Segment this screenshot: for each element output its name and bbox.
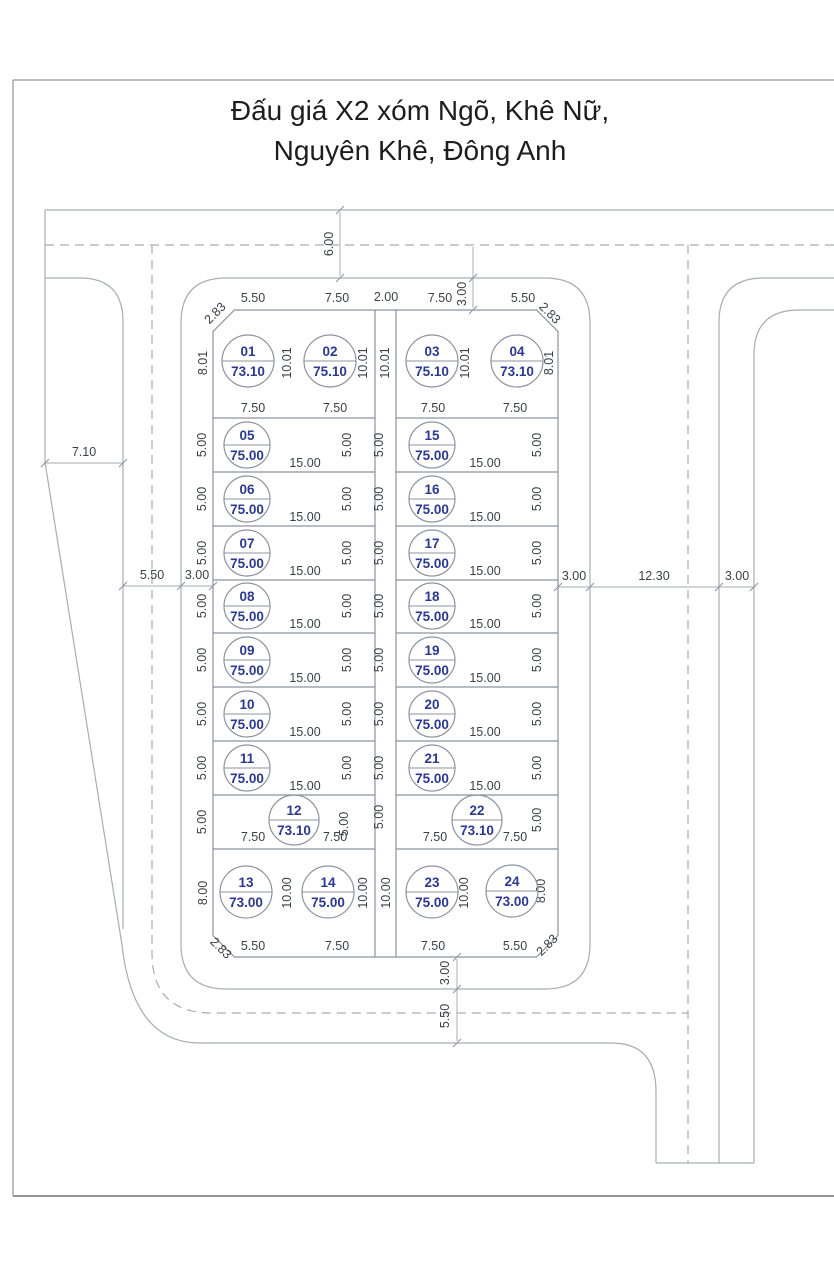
svg-text:14: 14 [320,875,336,890]
svg-text:5.00: 5.00 [530,541,544,565]
svg-text:15.00: 15.00 [469,779,500,793]
plot-17-marker: 1775.00 [409,530,455,576]
svg-text:04: 04 [509,344,525,359]
svg-text:5.00: 5.00 [340,433,354,457]
svg-text:15.00: 15.00 [289,564,320,578]
dim-label: 10.00 [457,877,471,908]
drawing-title-line1: Đấu giá X2 xóm Ngõ, Khê Nữ, [231,95,609,126]
svg-text:06: 06 [239,482,255,497]
dim-right-offset-east: 3.00 [725,569,749,583]
svg-text:5.00: 5.00 [372,433,386,457]
dim-label: 7.50 [428,291,452,305]
svg-text:73.00: 73.00 [495,894,529,909]
dim-label: 7.50 [421,939,445,953]
svg-text:5.00: 5.00 [195,433,209,457]
svg-text:5.00: 5.00 [195,487,209,511]
dimension-lines [45,212,754,1041]
svg-text:5.00: 5.00 [340,648,354,672]
svg-text:5.00: 5.00 [372,487,386,511]
plot-01-marker: 0173.10 [222,335,274,387]
dim-label: 10.01 [378,347,392,378]
dim-top-road-width: 6.00 [322,232,336,256]
dim-label: 10.01 [356,347,370,378]
svg-text:73.10: 73.10 [460,823,494,838]
svg-text:5.00: 5.00 [372,594,386,618]
svg-text:11: 11 [240,751,255,766]
svg-text:5.00: 5.00 [530,648,544,672]
left-road-west-edge [45,278,123,929]
svg-text:7.50: 7.50 [323,830,347,844]
svg-text:75.00: 75.00 [311,895,345,910]
svg-text:73.10: 73.10 [500,364,534,379]
svg-text:10: 10 [239,697,254,712]
svg-text:7.50: 7.50 [503,830,527,844]
dim-label: 7.50 [325,939,349,953]
svg-text:15.00: 15.00 [289,725,320,739]
svg-text:7.50: 7.50 [423,830,447,844]
svg-text:15.00: 15.00 [289,456,320,470]
svg-text:5.00: 5.00 [530,808,544,832]
svg-text:03: 03 [424,344,440,359]
svg-text:5.00: 5.00 [195,594,209,618]
dim-left-road-width: 5.50 [140,568,164,582]
plot-05-marker: 0575.00 [224,422,270,468]
svg-text:15.00: 15.00 [289,671,320,685]
svg-text:75.00: 75.00 [415,663,449,678]
dim-label: 7.50 [421,401,445,415]
dim-label: 5.50 [511,291,535,305]
dim-left-parcel: 7.10 [72,445,96,459]
plot-14-marker: 1475.00 [302,866,354,918]
dim-label: 5.50 [241,939,265,953]
svg-text:5.00: 5.00 [340,541,354,565]
svg-text:5.00: 5.00 [195,756,209,780]
svg-text:05: 05 [239,428,255,443]
svg-text:5.00: 5.00 [372,541,386,565]
plot-07-marker: 0775.00 [224,530,270,576]
svg-text:75.00: 75.00 [230,771,264,786]
dim-chamfer-bl: 2.83 [207,935,234,962]
drawing-title-line2: Nguyên Khê, Đông Anh [274,135,567,166]
svg-text:73.00: 73.00 [229,895,263,910]
svg-text:75.00: 75.00 [415,448,449,463]
dim-label: 8.01 [542,351,556,375]
svg-text:5.00: 5.00 [340,487,354,511]
svg-text:5.00: 5.00 [530,594,544,618]
plot-16-marker: 1675.00 [409,476,455,522]
svg-text:17: 17 [424,536,439,551]
svg-text:5.00: 5.00 [195,702,209,726]
svg-text:5.00: 5.00 [372,702,386,726]
dim-top-offset: 3.00 [455,282,469,306]
plot-06-marker: 0675.00 [224,476,270,522]
right-offset-line [754,310,834,1163]
svg-text:15: 15 [424,428,440,443]
dimension-ticks [41,206,758,1047]
svg-text:15.00: 15.00 [289,617,320,631]
svg-text:75.00: 75.00 [415,771,449,786]
svg-text:15.00: 15.00 [469,456,500,470]
svg-text:5.00: 5.00 [372,805,386,829]
svg-text:75.00: 75.00 [230,448,264,463]
svg-text:5.00: 5.00 [530,756,544,780]
svg-text:15.00: 15.00 [469,564,500,578]
dim-chamfer-br: 2.83 [534,932,561,959]
dim-label: 8.01 [196,351,210,375]
svg-text:13: 13 [238,875,254,890]
svg-text:22: 22 [469,803,484,818]
dim-label: 10.00 [280,877,294,908]
dim-label: 7.50 [241,401,265,415]
dim-bottom-road-width: 5.50 [438,1004,452,1028]
dim-label: 5.50 [241,291,265,305]
block-center-strip [375,310,396,957]
dim-label: 7.50 [325,291,349,305]
svg-text:08: 08 [239,589,255,604]
dim-label: 10.00 [379,877,393,908]
svg-text:5.00: 5.00 [530,433,544,457]
svg-text:5.00: 5.00 [340,756,354,780]
svg-text:75.10: 75.10 [313,364,347,379]
plot-12-marker: 1273.10 [269,795,319,845]
site-plan-drawing: Đấu giá X2 xóm Ngõ, Khê Nữ, Nguyên Khê, … [0,0,834,1280]
svg-text:12: 12 [286,803,301,818]
dim-label: 8.00 [196,881,210,905]
dim-chamfer-tr: 2.83 [536,300,563,327]
svg-text:18: 18 [424,589,440,604]
svg-text:5.00: 5.00 [530,487,544,511]
dim-right-offset-west: 3.00 [562,569,586,583]
svg-text:01: 01 [240,344,256,359]
svg-text:75.00: 75.00 [415,556,449,571]
dim-label: 7.50 [323,401,347,415]
dim-left-offset: 3.00 [185,568,209,582]
svg-text:75.00: 75.00 [415,717,449,732]
svg-text:5.00: 5.00 [195,810,209,834]
scanned-site-plan-sheet: Đấu giá X2 xóm Ngõ, Khê Nữ, Nguyên Khê, … [0,0,834,1280]
plot-13-marker: 1373.00 [220,866,272,918]
dim-bottom-offset: 3.00 [438,961,452,985]
plot-03-marker: 0375.10 [406,335,458,387]
svg-text:23: 23 [424,875,440,890]
svg-text:5.00: 5.00 [530,702,544,726]
svg-text:15.00: 15.00 [289,510,320,524]
plot-08-marker: 0875.00 [224,583,270,629]
svg-text:73.10: 73.10 [277,823,311,838]
plot-04-marker: 0473.10 [491,335,543,387]
svg-text:5.00: 5.00 [340,594,354,618]
svg-text:19: 19 [424,643,439,658]
svg-text:16: 16 [424,482,440,497]
svg-text:5.00: 5.00 [372,756,386,780]
svg-text:02: 02 [322,344,337,359]
plot-19-marker: 1975.00 [409,637,455,683]
plot-11-marker: 1175.00 [224,745,270,791]
dim-label: 2.00 [374,290,398,304]
plot-18-marker: 1875.00 [409,583,455,629]
svg-text:75.00: 75.00 [230,556,264,571]
svg-text:15.00: 15.00 [469,671,500,685]
svg-text:5.00: 5.00 [340,702,354,726]
svg-text:75.00: 75.00 [230,717,264,732]
svg-text:07: 07 [239,536,254,551]
svg-text:21: 21 [424,751,440,766]
dim-label: 10.01 [280,347,294,378]
svg-text:15.00: 15.00 [469,617,500,631]
plot-21-marker: 2175.00 [409,745,455,791]
svg-text:15.00: 15.00 [469,510,500,524]
svg-text:75.00: 75.00 [415,609,449,624]
right-road-east-edge [719,278,834,1163]
svg-text:5.00: 5.00 [372,648,386,672]
svg-text:15.00: 15.00 [469,725,500,739]
plot-22-marker: 2273.10 [452,795,502,845]
dim-label: 10.00 [356,877,370,908]
plot-02-marker: 0275.10 [304,335,356,387]
dim-label: 5.50 [503,939,527,953]
svg-text:5.00: 5.00 [195,648,209,672]
svg-text:15.00: 15.00 [289,779,320,793]
dim-chamfer-tl: 2.83 [202,300,229,327]
svg-text:75.00: 75.00 [230,502,264,517]
plot-15-marker: 1575.00 [409,422,455,468]
svg-text:75.00: 75.00 [415,502,449,517]
dim-label: 7.50 [503,401,527,415]
svg-text:09: 09 [239,643,254,658]
svg-text:75.00: 75.00 [230,609,264,624]
dim-label: 10.01 [458,347,472,378]
plot-23-marker: 2375.00 [406,866,458,918]
plot-09-marker: 0975.00 [224,637,270,683]
svg-text:5.00: 5.00 [195,541,209,565]
plot-divider-lines [213,418,558,849]
dim-right-road-width: 12.30 [638,569,669,583]
svg-text:24: 24 [504,874,520,889]
plot-24-marker: 2473.00 [486,865,538,917]
svg-text:20: 20 [424,697,439,712]
plot-20-marker: 2075.00 [409,691,455,737]
svg-text:75.00: 75.00 [415,895,449,910]
svg-text:73.10: 73.10 [231,364,265,379]
svg-text:75.00: 75.00 [230,663,264,678]
svg-text:75.10: 75.10 [415,364,449,379]
svg-text:7.50: 7.50 [241,830,265,844]
plot-10-marker: 1075.00 [224,691,270,737]
